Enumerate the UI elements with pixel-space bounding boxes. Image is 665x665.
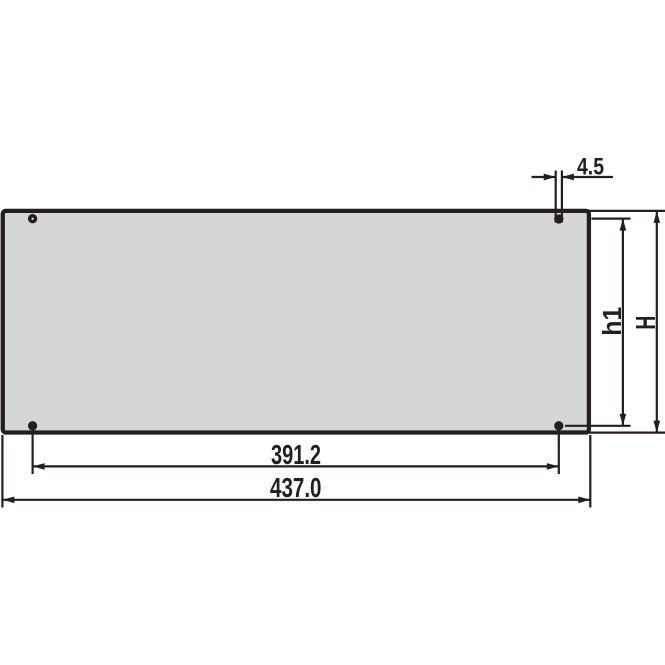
svg-text:H: H [630,316,661,330]
svg-text:h1: h1 [599,307,627,336]
svg-text:391.2: 391.2 [271,439,321,470]
svg-text:437.0: 437.0 [270,472,322,503]
svg-text:4.5: 4.5 [577,153,604,180]
